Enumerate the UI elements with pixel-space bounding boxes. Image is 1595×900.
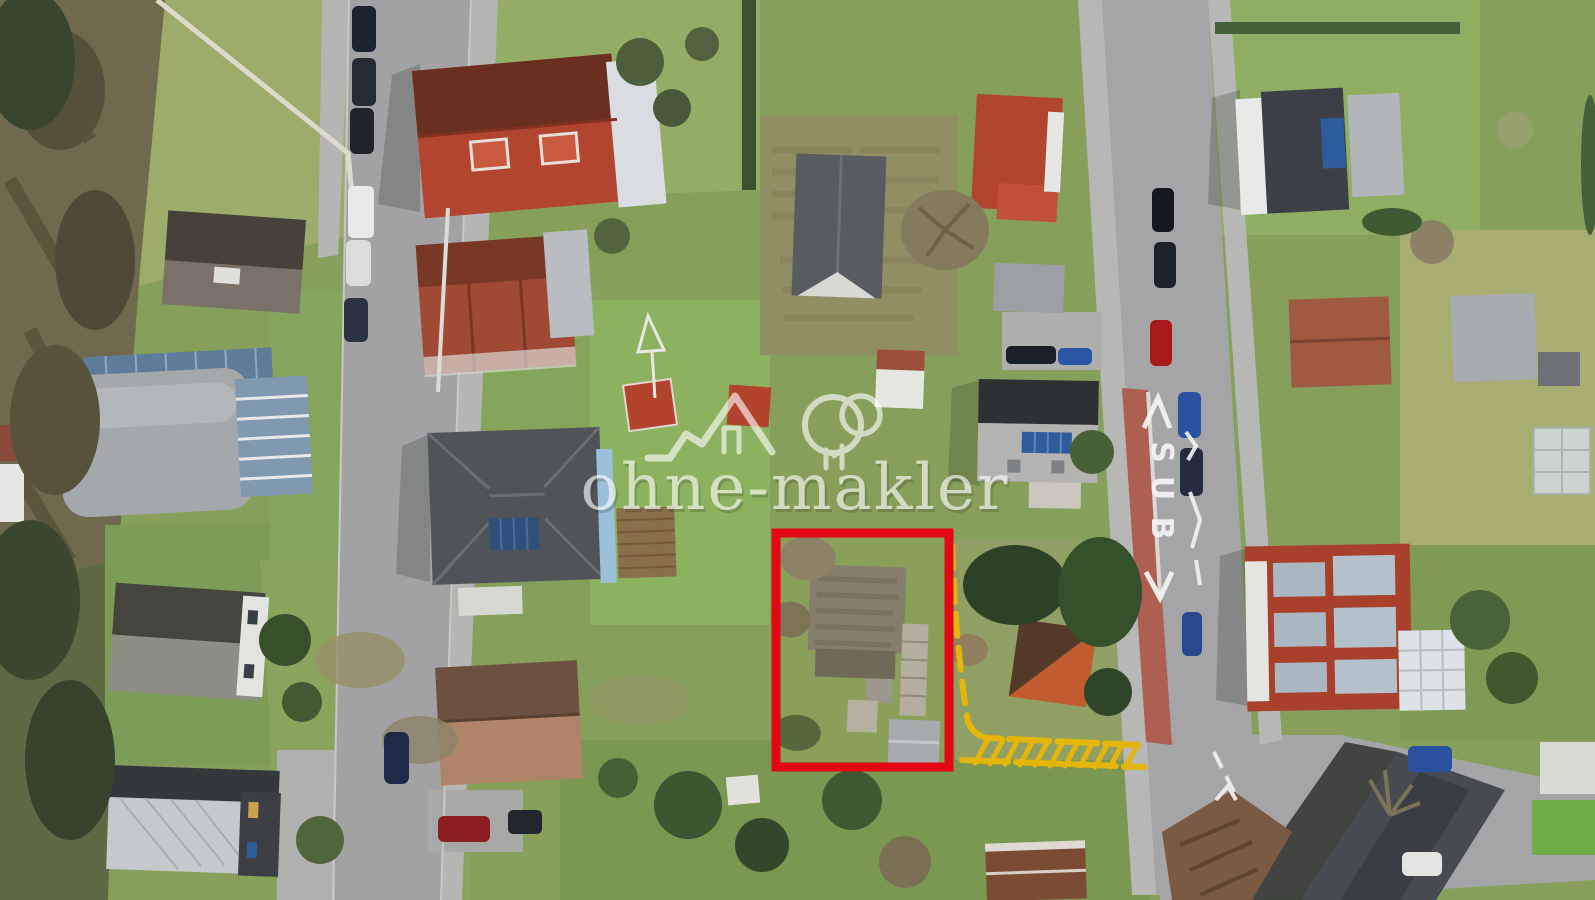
- rs-panel: [1335, 659, 1398, 694]
- tree: [1084, 668, 1132, 716]
- br-white-house: [1540, 742, 1595, 794]
- tree: [282, 682, 322, 722]
- center-terrace-white: [458, 586, 523, 616]
- hedge-top-center: [742, 0, 756, 190]
- rs-panel: [1274, 612, 1327, 647]
- hedge-top-right: [1215, 22, 1460, 34]
- shadow-ne-house: [1208, 90, 1240, 210]
- garden-shed-red-1: [623, 379, 677, 431]
- bus-letter: S: [1144, 441, 1179, 463]
- tree: [653, 89, 691, 127]
- sw-facade-dark: [238, 792, 281, 877]
- hedge-east-of-plot: [963, 545, 1067, 625]
- es-skylight: [1051, 460, 1064, 473]
- tree: [735, 818, 789, 872]
- rs-panel: [1334, 607, 1397, 648]
- parked-car: [1154, 242, 1176, 288]
- parked-car-white: [346, 240, 371, 286]
- nw2-garage: [1347, 93, 1404, 198]
- parked-car-blue-junction: [1408, 746, 1452, 772]
- woodland-canopy: [55, 190, 135, 330]
- tree: [598, 758, 638, 798]
- parked-car: [352, 58, 376, 106]
- bus-letter: U: [1144, 476, 1179, 500]
- dry-garden-right: [1400, 230, 1595, 545]
- parked-car-white-junction: [1402, 852, 1442, 876]
- parked-van-white: [348, 186, 374, 238]
- house-west-gable: [108, 583, 269, 701]
- plot-driveway: [847, 700, 878, 733]
- es-roof-north: [978, 379, 1099, 425]
- villa-dormer: [470, 139, 508, 170]
- aerial-photo-canvas: S U B ohne-makler ohne-makler: [0, 0, 1595, 900]
- sw-window-lit: [247, 842, 258, 858]
- es-terrace: [1029, 482, 1081, 509]
- moving-car-left-street: [384, 732, 409, 784]
- sc-roof-south: [438, 714, 583, 785]
- bare-tree: [879, 836, 931, 888]
- modern-house-southwest: [106, 765, 282, 877]
- garden-hut-right: [1538, 352, 1580, 386]
- plot-extension-white: [899, 623, 928, 716]
- parked-car: [344, 298, 368, 342]
- shadow-red-solar-house: [1216, 548, 1248, 706]
- tree: [654, 771, 722, 839]
- rs-panel: [1275, 662, 1328, 693]
- soil-patch: [590, 675, 690, 725]
- woodland-canopy: [10, 345, 100, 495]
- nw2-solar: [1320, 118, 1346, 169]
- hedge-ne-house: [1362, 208, 1422, 236]
- tree: [1070, 430, 1114, 474]
- house-ne-white-solar: [1235, 85, 1405, 215]
- garden-house-roof: [876, 349, 925, 371]
- house-south-center: [435, 660, 583, 785]
- tree: [1450, 590, 1510, 650]
- rs-panel: [1333, 555, 1396, 596]
- nw-dormer: [213, 267, 240, 285]
- parked-car-red-driveway: [438, 816, 490, 842]
- house-northwest: [162, 210, 306, 313]
- villa-dormer: [540, 133, 578, 164]
- bus-letter: B: [1144, 517, 1179, 540]
- parked-car: [1152, 188, 1174, 232]
- tree: [685, 27, 719, 61]
- parked-car: [508, 810, 542, 834]
- plot-gray-shed: [888, 719, 941, 766]
- parked-car-blue: [1058, 348, 1092, 365]
- wg-window: [247, 610, 258, 625]
- tree: [822, 770, 882, 830]
- woodland-canopy-dark: [25, 680, 115, 840]
- parked-car-blue: [1182, 612, 1202, 656]
- garden-house-white: [875, 349, 925, 409]
- tree: [1486, 652, 1538, 704]
- soil-patch: [315, 632, 405, 688]
- parked-car-red: [1150, 320, 1172, 366]
- sc-roof-north: [435, 660, 580, 721]
- e2-garage: [1451, 293, 1538, 382]
- parked-car: [352, 6, 376, 52]
- rs-panel: [1273, 562, 1326, 597]
- tree: [594, 218, 630, 254]
- br-bright-lawn: [1532, 800, 1595, 855]
- house-center-north: [792, 154, 887, 299]
- rs-wall-west: [1245, 561, 1269, 701]
- plot-shed-ridge: [888, 741, 939, 743]
- parked-car-blue: [1178, 392, 1201, 438]
- row-house-annex-gray: [543, 229, 594, 338]
- tree: [259, 614, 311, 666]
- camper-left-edge: [0, 464, 24, 522]
- plot-patio: [866, 678, 893, 703]
- house-northeast-red: [970, 94, 1064, 222]
- house-bottom-center: [985, 840, 1087, 900]
- tree: [296, 816, 344, 864]
- parked-car: [350, 108, 374, 154]
- plot-house-lower: [815, 648, 896, 679]
- small-gray-building: [993, 263, 1065, 313]
- tree: [1497, 112, 1533, 148]
- wg-window: [243, 664, 254, 679]
- parked-car: [1006, 346, 1056, 364]
- hedge-east-of-plot-2: [1058, 537, 1142, 647]
- bare-shrub: [948, 634, 988, 666]
- white-shed-bottom-center: [726, 775, 760, 806]
- nw-roof-north: [165, 210, 306, 270]
- sw-window-lit: [248, 802, 259, 818]
- watermark-text: ohne-makler: [580, 451, 1009, 525]
- tree: [616, 38, 664, 86]
